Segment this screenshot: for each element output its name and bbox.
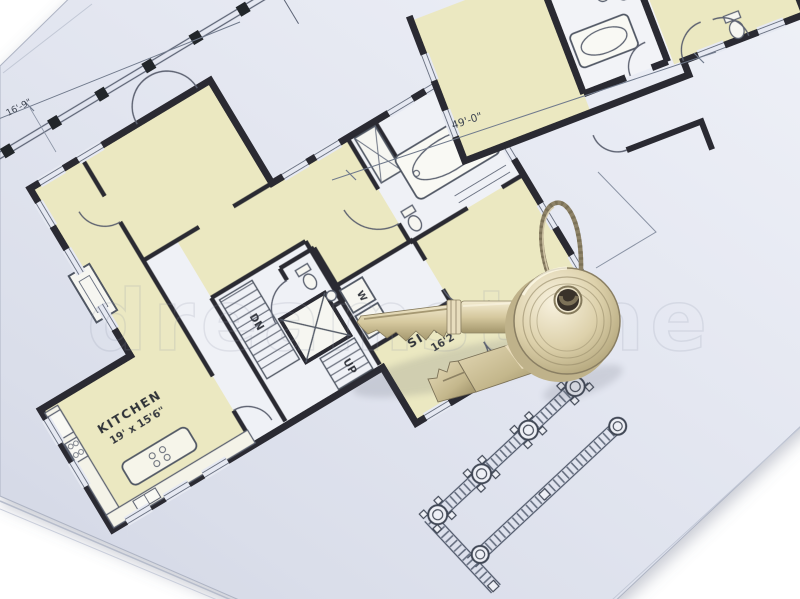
photo-of-keys-on-blueprints: DN UP W D [0, 0, 800, 599]
scene-canvas: DN UP W D [0, 0, 800, 599]
key-collar [447, 300, 461, 334]
